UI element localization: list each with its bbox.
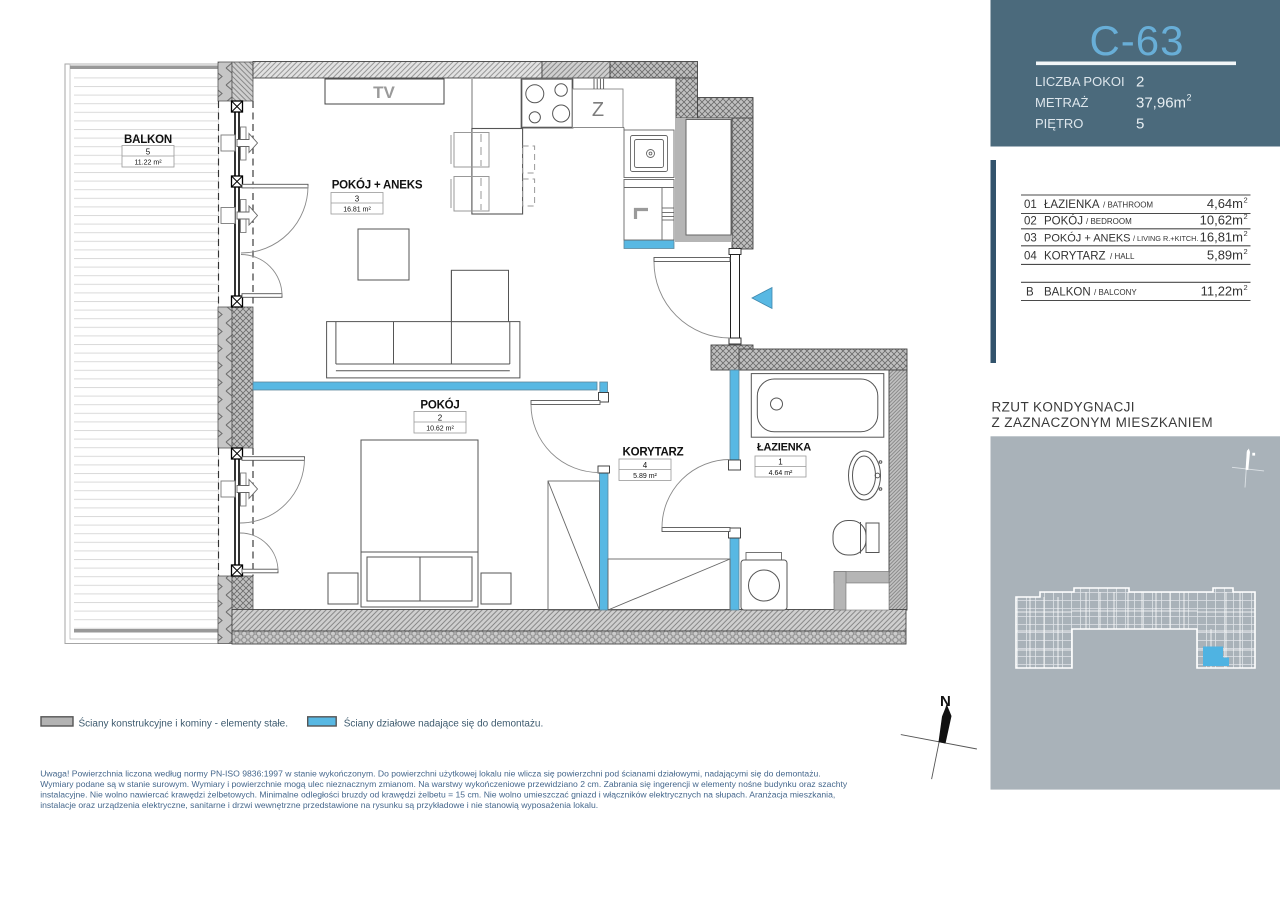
svg-text:/ BEDROOM: / BEDROOM xyxy=(1086,217,1132,226)
svg-text:Z ZAZNACZONYM MIESZKANIEM: Z ZAZNACZONYM MIESZKANIEM xyxy=(992,415,1214,430)
svg-text:03: 03 xyxy=(1024,232,1037,244)
svg-text:2: 2 xyxy=(1244,247,1248,256)
svg-text:2: 2 xyxy=(1244,196,1248,205)
svg-text:04: 04 xyxy=(1024,251,1037,263)
svg-text:Wymiary podane są w stanie sur: Wymiary podane są w stanie surowym. Wymi… xyxy=(40,779,848,789)
svg-text:/ BATHROOM: / BATHROOM xyxy=(1103,201,1153,210)
svg-text:instalacje oraz urządzenia ele: instalacje oraz urządzenia elektryczne, … xyxy=(40,800,598,810)
svg-text:/ HALL: / HALL xyxy=(1110,252,1135,261)
svg-text:PIĘTRO: PIĘTRO xyxy=(1035,116,1083,131)
svg-text:11.22 m²: 11.22 m² xyxy=(134,160,162,167)
svg-text:/ LIVING R.+KITCH.: / LIVING R.+KITCH. xyxy=(1133,234,1198,243)
svg-text:BALKON: BALKON xyxy=(1044,286,1091,298)
svg-text:10.62 m²: 10.62 m² xyxy=(426,426,454,433)
svg-text:B: B xyxy=(1026,286,1034,298)
svg-text:Z: Z xyxy=(592,99,604,121)
svg-text:instalacyjne. Nie wolno nawier: instalacyjne. Nie wolno nawiercać krawęd… xyxy=(40,790,835,800)
svg-text:KORYTARZ: KORYTARZ xyxy=(622,447,683,459)
svg-text:2: 2 xyxy=(1244,212,1248,221)
svg-text:POKÓJ: POKÓJ xyxy=(420,399,459,412)
svg-text:02: 02 xyxy=(1024,216,1037,228)
svg-text:2: 2 xyxy=(1136,74,1144,91)
svg-text:ŁAZIENKA: ŁAZIENKA xyxy=(757,442,811,454)
svg-text:11,22m: 11,22m xyxy=(1201,283,1243,298)
svg-text:POKÓJ + ANEKS: POKÓJ + ANEKS xyxy=(332,179,423,192)
svg-text:RZUT KONDYGNACJI: RZUT KONDYGNACJI xyxy=(992,400,1135,415)
svg-text:LICZBA POKOI: LICZBA POKOI xyxy=(1035,74,1125,89)
svg-text:POKÓJ: POKÓJ xyxy=(1044,215,1083,228)
svg-text:2: 2 xyxy=(1244,229,1248,238)
svg-text:2: 2 xyxy=(1244,283,1248,292)
svg-text:Ściany konstrukcyjne i kominy: Ściany konstrukcyjne i kominy - elementy… xyxy=(79,717,289,730)
svg-text:C-63: C-63 xyxy=(1089,17,1184,64)
svg-text:METRAŻ: METRAŻ xyxy=(1035,95,1089,110)
svg-text:4.64 m²: 4.64 m² xyxy=(769,470,793,477)
svg-text:Ściany działowe nadające się d: Ściany działowe nadające się do demontaż… xyxy=(344,717,544,730)
svg-text:3: 3 xyxy=(355,195,360,204)
svg-text:37,96m: 37,96m xyxy=(1136,95,1186,112)
svg-text:4,64m: 4,64m xyxy=(1207,196,1243,211)
svg-text:BALKON: BALKON xyxy=(124,134,172,146)
svg-text:5,89m: 5,89m xyxy=(1207,248,1243,263)
svg-text:POKÓJ + ANEKS: POKÓJ + ANEKS xyxy=(1044,231,1131,244)
svg-text:N: N xyxy=(940,693,951,710)
svg-text:16,81m: 16,81m xyxy=(1200,229,1243,244)
svg-text:TV: TV xyxy=(373,83,395,102)
svg-text:16.81 m²: 16.81 m² xyxy=(343,207,371,214)
svg-text:KORYTARZ: KORYTARZ xyxy=(1044,251,1106,263)
svg-text:Uwaga! Powierzchnia liczona we: Uwaga! Powierzchnia liczona według normy… xyxy=(40,769,821,779)
svg-text:01: 01 xyxy=(1024,199,1037,211)
svg-text:10,62m: 10,62m xyxy=(1200,213,1243,228)
svg-text:2: 2 xyxy=(1187,93,1192,103)
svg-text:4: 4 xyxy=(643,461,648,470)
svg-text:2: 2 xyxy=(438,414,443,423)
svg-text:ŁAZIENKA: ŁAZIENKA xyxy=(1044,199,1100,211)
svg-text:5: 5 xyxy=(146,148,151,157)
svg-text:5.89 m²: 5.89 m² xyxy=(633,473,657,480)
svg-text:5: 5 xyxy=(1136,116,1144,133)
svg-text:/ BALCONY: / BALCONY xyxy=(1094,288,1137,297)
svg-text:1: 1 xyxy=(778,458,783,467)
